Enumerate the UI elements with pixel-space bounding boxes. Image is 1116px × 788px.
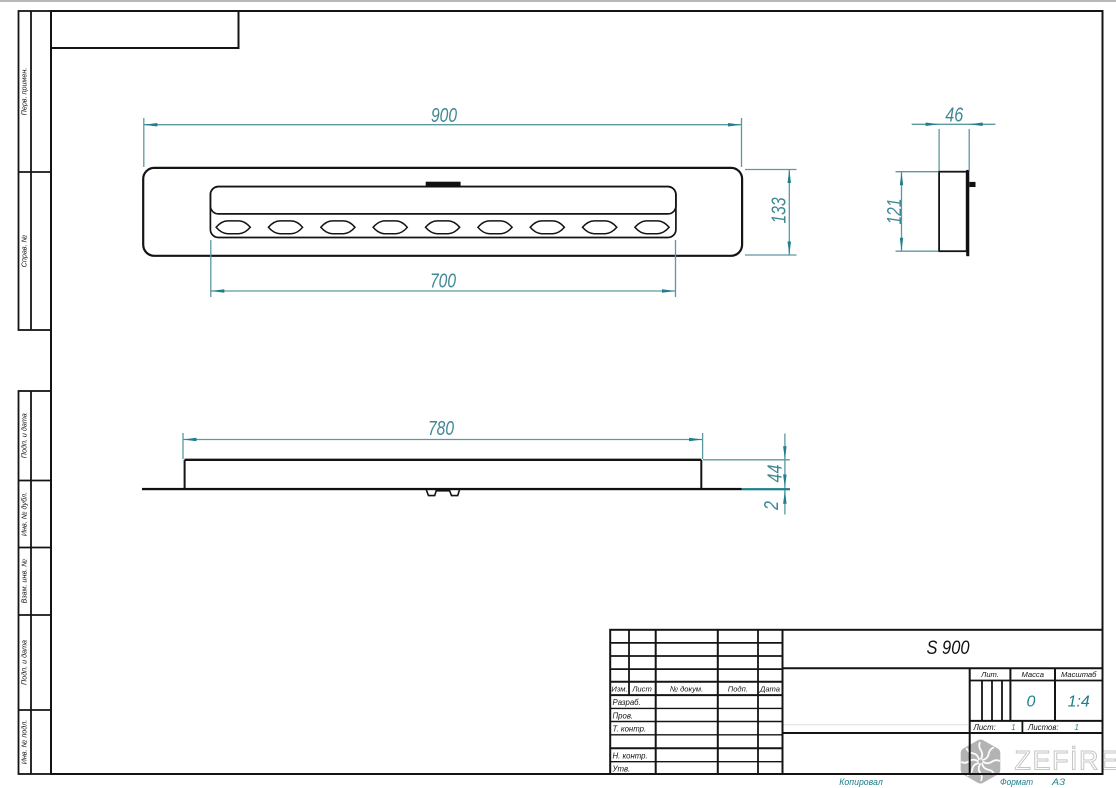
svg-text:44: 44 [764, 465, 786, 483]
svg-text:№ докум.: № докум. [670, 685, 703, 694]
svg-text:46: 46 [945, 105, 964, 127]
svg-text:1: 1 [1075, 723, 1079, 732]
svg-text:Лист: Лист [631, 685, 652, 694]
svg-text:Т. контр.: Т. контр. [613, 725, 647, 734]
svg-text:Подп. и дата: Подп. и дата [20, 413, 29, 458]
svg-text:700: 700 [430, 271, 456, 293]
svg-text:А3: А3 [1051, 777, 1066, 788]
svg-text:Формат: Формат [1000, 777, 1033, 788]
svg-text:Перв. примен.: Перв. примен. [20, 68, 29, 116]
svg-text:Утв.: Утв. [612, 765, 631, 774]
svg-text:900: 900 [431, 105, 457, 127]
svg-text:Подп.: Подп. [728, 685, 748, 694]
svg-text:2: 2 [761, 501, 783, 511]
svg-text:Подп. и дата: Подп. и дата [20, 640, 29, 685]
svg-text:Изм.: Изм. [611, 685, 627, 694]
svg-text:780: 780 [428, 418, 454, 440]
svg-text:Взам. инв. №: Взам. инв. № [20, 559, 29, 604]
svg-text:Лист:: Лист: [973, 723, 996, 732]
svg-text:Листов:: Листов: [1027, 723, 1059, 732]
svg-text:Масса: Масса [1021, 670, 1043, 679]
svg-text:Разраб.: Разраб. [613, 698, 641, 707]
svg-text:Справ. №: Справ. № [20, 234, 29, 267]
svg-text:133: 133 [769, 198, 791, 224]
svg-text:Масштаб: Масштаб [1061, 670, 1097, 679]
svg-text:Инв. № дубл.: Инв. № дубл. [20, 492, 29, 536]
svg-text:0: 0 [1027, 694, 1036, 711]
svg-text:S 900: S 900 [927, 638, 970, 659]
svg-text:Н. контр.: Н. контр. [613, 751, 648, 760]
svg-text:1: 1 [1011, 723, 1015, 732]
svg-text:ZEFİRE: ZEFİRE [1015, 745, 1116, 776]
svg-text:Лит.: Лит. [980, 670, 999, 679]
svg-text:121: 121 [884, 199, 906, 225]
svg-text:Дата: Дата [759, 685, 780, 694]
svg-text:Пров.: Пров. [613, 711, 634, 720]
svg-text:1:4: 1:4 [1068, 694, 1090, 711]
svg-text:Копировал: Копировал [839, 777, 883, 788]
svg-text:Инв. № подл.: Инв. № подл. [20, 720, 29, 765]
